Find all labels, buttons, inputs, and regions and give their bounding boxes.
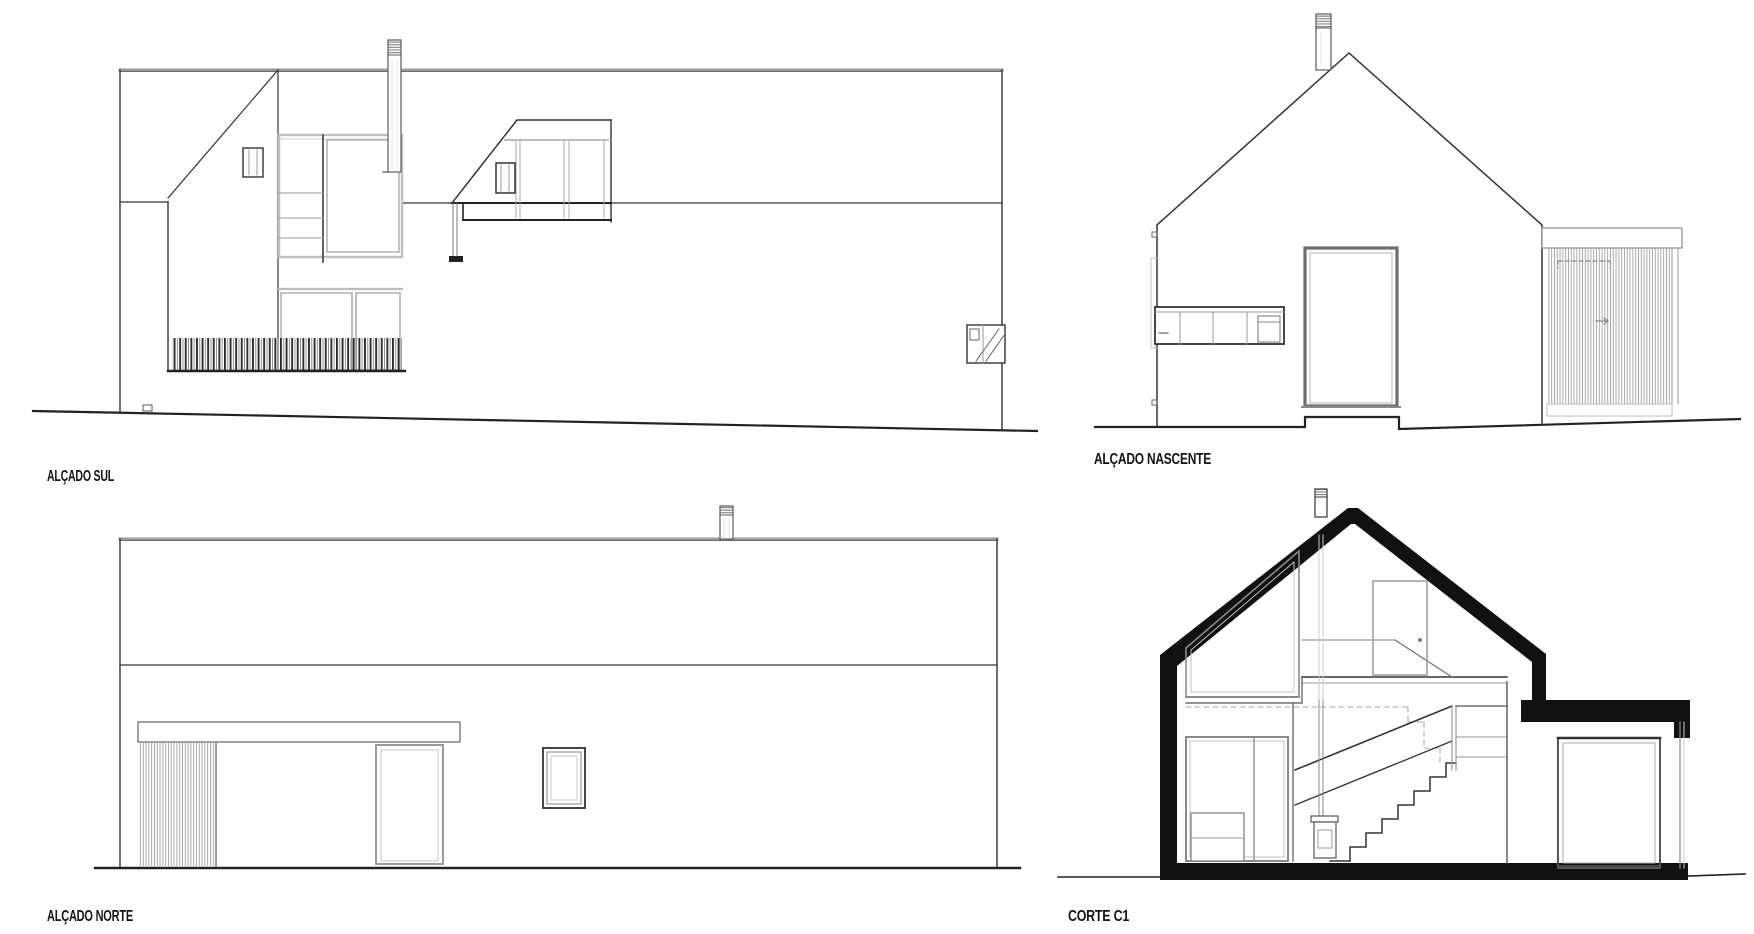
elevation-east-drawing: ALÇADO NASCENTE [1094, 14, 1740, 468]
south-upper-glazing-grid [279, 135, 402, 262]
section-c1-drawing: CORTE C1 [1058, 489, 1745, 925]
south-elevation-label: ALÇADO SUL [47, 468, 114, 485]
section-chimney [1315, 489, 1327, 517]
east-chimney [1316, 14, 1331, 70]
elevation-south-drawing: ALÇADO SUL [33, 40, 1037, 485]
section-upper-floor [1186, 640, 1507, 703]
section-annex-roof-poche [1521, 700, 1690, 738]
section-roof-wall-poche [1160, 508, 1546, 863]
section-annex-glazing [1558, 722, 1684, 868]
north-window [543, 748, 585, 808]
south-gable-window [243, 148, 263, 177]
section-headroom-dashed-line [1186, 707, 1440, 762]
section-living-glazing [1186, 737, 1288, 861]
section-stove [1311, 535, 1338, 858]
east-kitchen-window [1151, 258, 1284, 348]
drawings-canvas: ALÇADO SUL [0, 0, 1754, 934]
south-vent-box [967, 325, 1005, 363]
south-dormer-box [452, 120, 611, 222]
north-carport-beam [138, 722, 460, 742]
east-elevation-label: ALÇADO NASCENTE [1094, 451, 1211, 468]
south-downpipe [449, 203, 463, 262]
east-garage-annex [1542, 228, 1682, 416]
south-chimney [383, 40, 401, 172]
south-fence-slats [168, 338, 405, 371]
north-elevation-label: ALÇADO NORTE [47, 908, 133, 925]
elevation-north-drawing: ALÇADO NORTE [47, 506, 1020, 925]
north-chimney [720, 506, 733, 539]
section-c1-label: CORTE C1 [1068, 908, 1129, 925]
north-carport-slats [140, 742, 218, 866]
drawing-sheet: ALÇADO SUL [0, 0, 1754, 934]
east-entry-door [1302, 248, 1400, 407]
north-door [376, 745, 443, 864]
section-upper-door [1373, 581, 1427, 675]
